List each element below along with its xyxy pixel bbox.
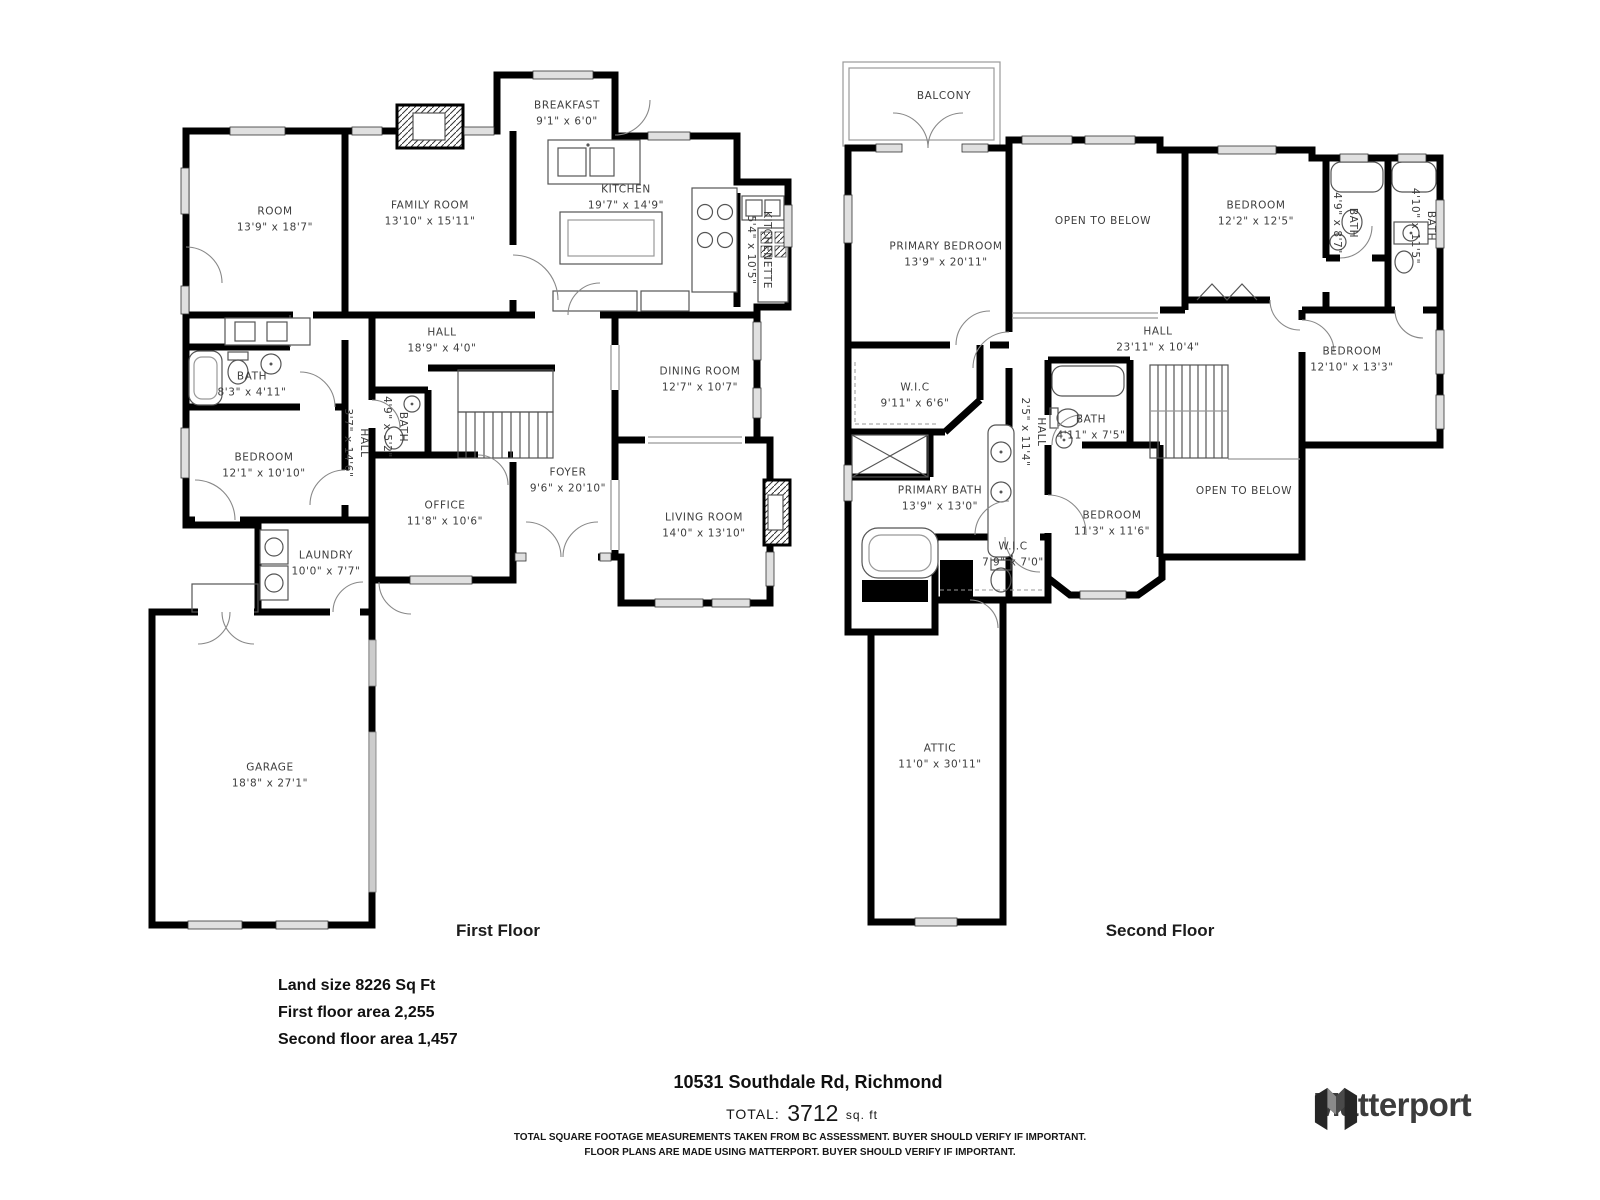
property-address: 10531 Southdale Rd, Richmond xyxy=(458,1072,1158,1093)
matterport-m-icon xyxy=(1313,1086,1359,1132)
floorplan-sheet: .bd{fill:#fff;stroke:#000;stroke-width:7… xyxy=(0,0,1600,1200)
total-value: 3712 xyxy=(784,1100,841,1126)
second-floor-title: Second Floor xyxy=(1106,921,1215,941)
second-floor-area: Second floor area 1,457 xyxy=(278,1026,458,1053)
floorplan-drawing: .bd{fill:#fff;stroke:#000;stroke-width:7… xyxy=(0,0,1600,1200)
land-size: Land size 8226 Sq Ft xyxy=(278,972,458,999)
disclaimer-line-1: TOTAL SQUARE FOOTAGE MEASUREMENTS TAKEN … xyxy=(300,1132,1300,1143)
second-floor-plan xyxy=(843,62,1444,926)
total-unit: sq. ft xyxy=(846,1108,878,1122)
area-stats: Land size 8226 Sq Ft First floor area 2,… xyxy=(278,972,458,1053)
total-label: TOTAL: xyxy=(726,1106,780,1122)
first-floor-plan xyxy=(152,71,792,929)
matterport-logo: Matterport xyxy=(1313,1086,1471,1124)
first-floor-title: First Floor xyxy=(456,921,540,941)
balcony-outline xyxy=(843,62,1000,146)
disclaimer-line-2: FLOOR PLANS ARE MADE USING MATTERPORT. B… xyxy=(300,1147,1300,1158)
first-floor-area: First floor area 2,255 xyxy=(278,999,458,1026)
total-area: TOTAL: 3712 sq. ft xyxy=(452,1100,1152,1127)
